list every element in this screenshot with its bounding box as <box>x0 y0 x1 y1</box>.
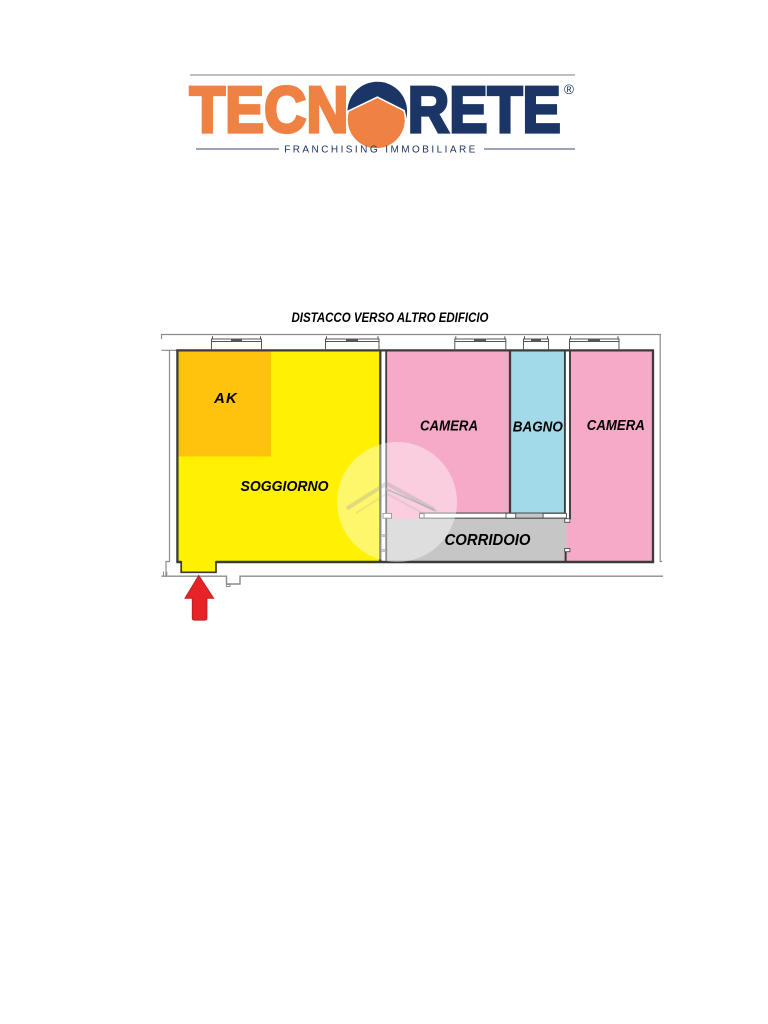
svg-text:CAMERA: CAMERA <box>587 418 645 434</box>
svg-text:FRANCHISING IMMOBILIARE: FRANCHISING IMMOBILIARE <box>284 145 478 156</box>
svg-text:SOGGIORNO: SOGGIORNO <box>241 479 330 495</box>
svg-text:CORRIDOIO: CORRIDOIO <box>445 532 532 549</box>
svg-text:CAMERA: CAMERA <box>420 419 478 435</box>
svg-text:RETE: RETE <box>408 73 561 146</box>
svg-text:BAGNO: BAGNO <box>513 420 564 436</box>
svg-text:DISTACCO VERSO ALTRO EDIFICIO: DISTACCO VERSO ALTRO EDIFICIO <box>292 310 489 326</box>
svg-text:AK: AK <box>213 391 238 407</box>
svg-text:TECN: TECN <box>190 73 349 146</box>
svg-text:®: ® <box>564 82 574 97</box>
